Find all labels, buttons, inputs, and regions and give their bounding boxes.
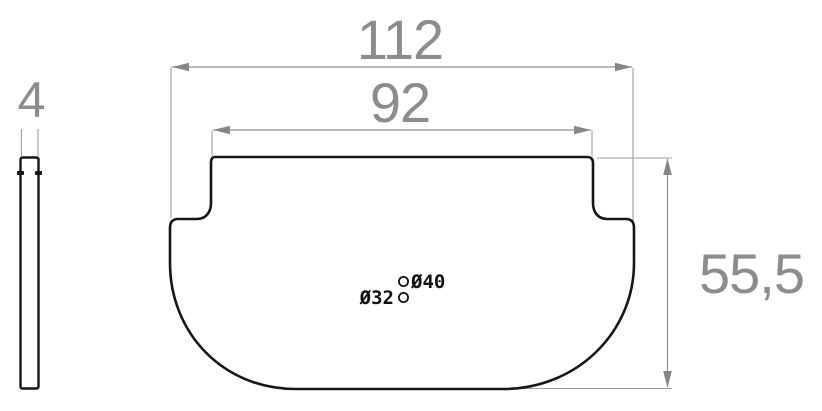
hole-marker-32 <box>399 293 408 302</box>
overall-width-arrow-left <box>172 63 189 71</box>
height-arrow-top <box>663 158 672 175</box>
part-drawing: 4 Ø40 Ø32 112 <box>0 0 822 411</box>
dim-height: 55,5 <box>663 158 804 388</box>
dim-height-label: 55,5 <box>699 242 804 305</box>
top-width-arrow-right <box>574 126 591 134</box>
thickness-arrow-mark-right <box>35 171 42 175</box>
thickness-arrow-mark-left <box>17 171 24 175</box>
side-view: 4 <box>17 72 45 389</box>
dim-thickness-label: 4 <box>18 72 45 128</box>
top-width-arrow-left <box>213 126 230 134</box>
dim-top-width: 92 <box>213 71 591 134</box>
hole-marker-40 <box>399 277 408 286</box>
hole-label-40: Ø40 <box>410 271 445 293</box>
main-outline <box>170 157 634 389</box>
hole-label-32: Ø32 <box>359 287 394 309</box>
dim-overall-width: 112 <box>172 8 632 71</box>
technical-drawing-canvas: 4 Ø40 Ø32 112 <box>0 0 822 411</box>
dim-top-width-label: 92 <box>370 71 430 134</box>
dim-overall-width-label: 112 <box>357 8 443 71</box>
side-view-outline <box>21 158 39 389</box>
height-arrow-bottom <box>663 371 672 388</box>
overall-width-arrow-right <box>615 63 632 71</box>
